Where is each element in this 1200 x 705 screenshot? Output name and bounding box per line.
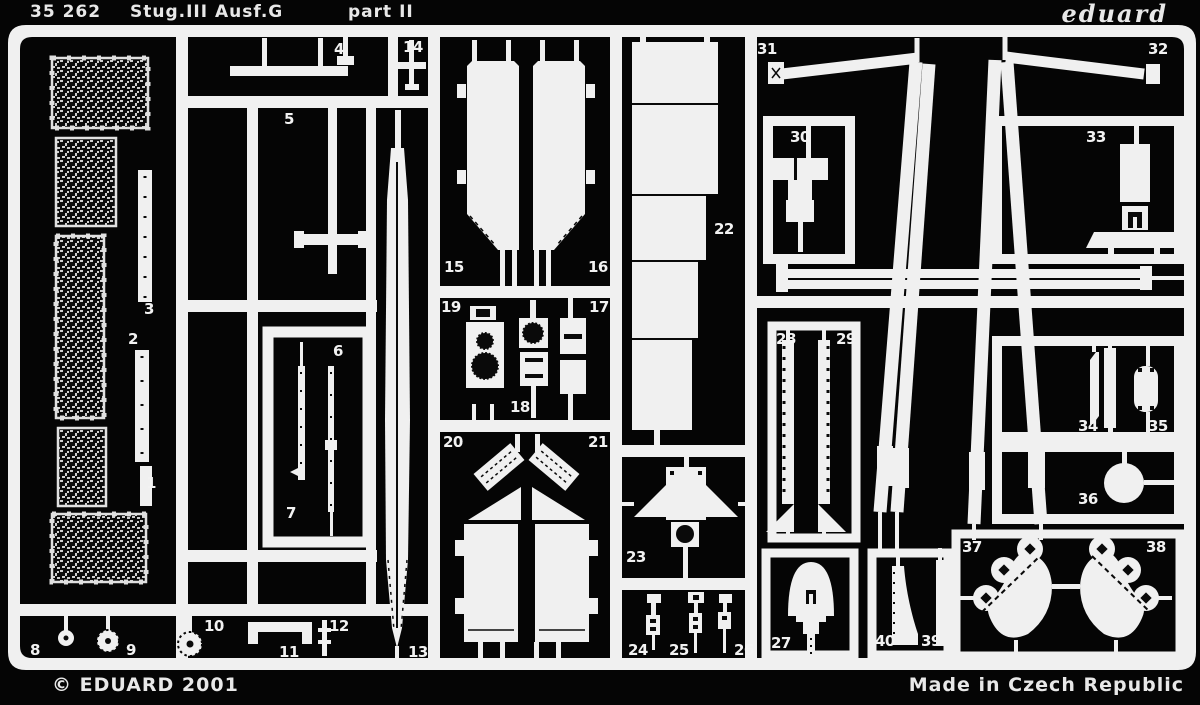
part-number-label-40: 40 bbox=[875, 634, 895, 649]
part-number-label-38: 38 bbox=[1146, 540, 1166, 555]
part-number-label-20: 20 bbox=[443, 435, 463, 450]
part-number-label-5: 5 bbox=[284, 112, 294, 127]
part-number-label-2: 2 bbox=[128, 332, 138, 347]
part-number-label-32: 32 bbox=[1148, 42, 1168, 57]
part-number-label-4: 4 bbox=[334, 42, 344, 57]
dome-part-27 bbox=[788, 562, 834, 660]
part-number-label-11: 11 bbox=[279, 645, 299, 660]
part-number-label-15: 15 bbox=[444, 260, 464, 275]
part-number-label-26: 26 bbox=[734, 643, 754, 658]
part-number-label-18: 18 bbox=[510, 400, 530, 415]
toothed-strip-parts-28-29 bbox=[766, 330, 846, 542]
part-number-label-29: 29 bbox=[836, 332, 856, 347]
part-number-label-27: 27 bbox=[771, 636, 791, 651]
part-number-label-7: 7 bbox=[286, 506, 296, 521]
part-number-label-17: 17 bbox=[589, 300, 609, 315]
mesh-grille-parts bbox=[52, 58, 148, 582]
part-number-label-28: 28 bbox=[776, 332, 796, 347]
part-number-label-39: 39 bbox=[921, 634, 941, 649]
rod-parts-6-7 bbox=[290, 342, 337, 536]
part-number-label-3: 3 bbox=[144, 302, 154, 317]
mount-part-33 bbox=[1086, 126, 1184, 262]
fret-artwork bbox=[0, 0, 1200, 705]
catalog-number: 35 262 bbox=[30, 2, 101, 22]
eduard-logo: eduard bbox=[1062, 0, 1168, 28]
set-title: Stug.III Ausf.G bbox=[130, 2, 283, 22]
part-number-label-1: 1 bbox=[146, 476, 156, 491]
fender-panels-20-21 bbox=[455, 434, 598, 658]
photoetch-sheet: 35 262 Stug.III Ausf.G part II eduard © … bbox=[0, 0, 1200, 705]
copyright-text: © EDUARD 2001 bbox=[52, 674, 239, 696]
part-number-label-25: 25 bbox=[669, 643, 689, 658]
part-number-label-6: 6 bbox=[333, 344, 343, 359]
part-number-label-19: 19 bbox=[441, 300, 461, 315]
rod-part-5 bbox=[294, 96, 368, 274]
part-number-label-21: 21 bbox=[588, 435, 608, 450]
set-subtitle: part II bbox=[348, 2, 414, 22]
part-number-label-24: 24 bbox=[628, 643, 648, 658]
part-number-label-22: 22 bbox=[714, 222, 734, 237]
part-number-label-12: 12 bbox=[329, 619, 349, 634]
part-number-label-8: 8 bbox=[30, 643, 40, 658]
part-number-label-9: 9 bbox=[126, 643, 136, 658]
part-number-label-23: 23 bbox=[626, 550, 646, 565]
made-in-text: Made in Czech Republic bbox=[909, 674, 1184, 696]
part-number-label-33: 33 bbox=[1086, 130, 1106, 145]
part-number-label-31: 31 bbox=[757, 42, 777, 57]
blade-part-13 bbox=[385, 110, 410, 658]
part-number-label-14: 14 bbox=[403, 40, 423, 55]
part-number-label-16: 16 bbox=[588, 260, 608, 275]
part-number-label-13: 13 bbox=[408, 645, 428, 660]
small-disc-parts-8-9 bbox=[58, 616, 119, 652]
part-number-label-30: 30 bbox=[790, 130, 810, 145]
pin-parts-24-25-26 bbox=[646, 592, 732, 653]
small-parts-10-11-12 bbox=[178, 616, 331, 656]
part-number-label-35: 35 bbox=[1148, 419, 1168, 434]
panel-part-22 bbox=[632, 36, 718, 445]
clover-parts-37-38 bbox=[960, 536, 1172, 654]
part-number-label-36: 36 bbox=[1078, 492, 1098, 507]
fender-panels-15-16 bbox=[457, 40, 595, 286]
part-number-label-34: 34 bbox=[1078, 419, 1098, 434]
part-number-label-10: 10 bbox=[204, 619, 224, 634]
part-number-label-37: 37 bbox=[962, 540, 982, 555]
